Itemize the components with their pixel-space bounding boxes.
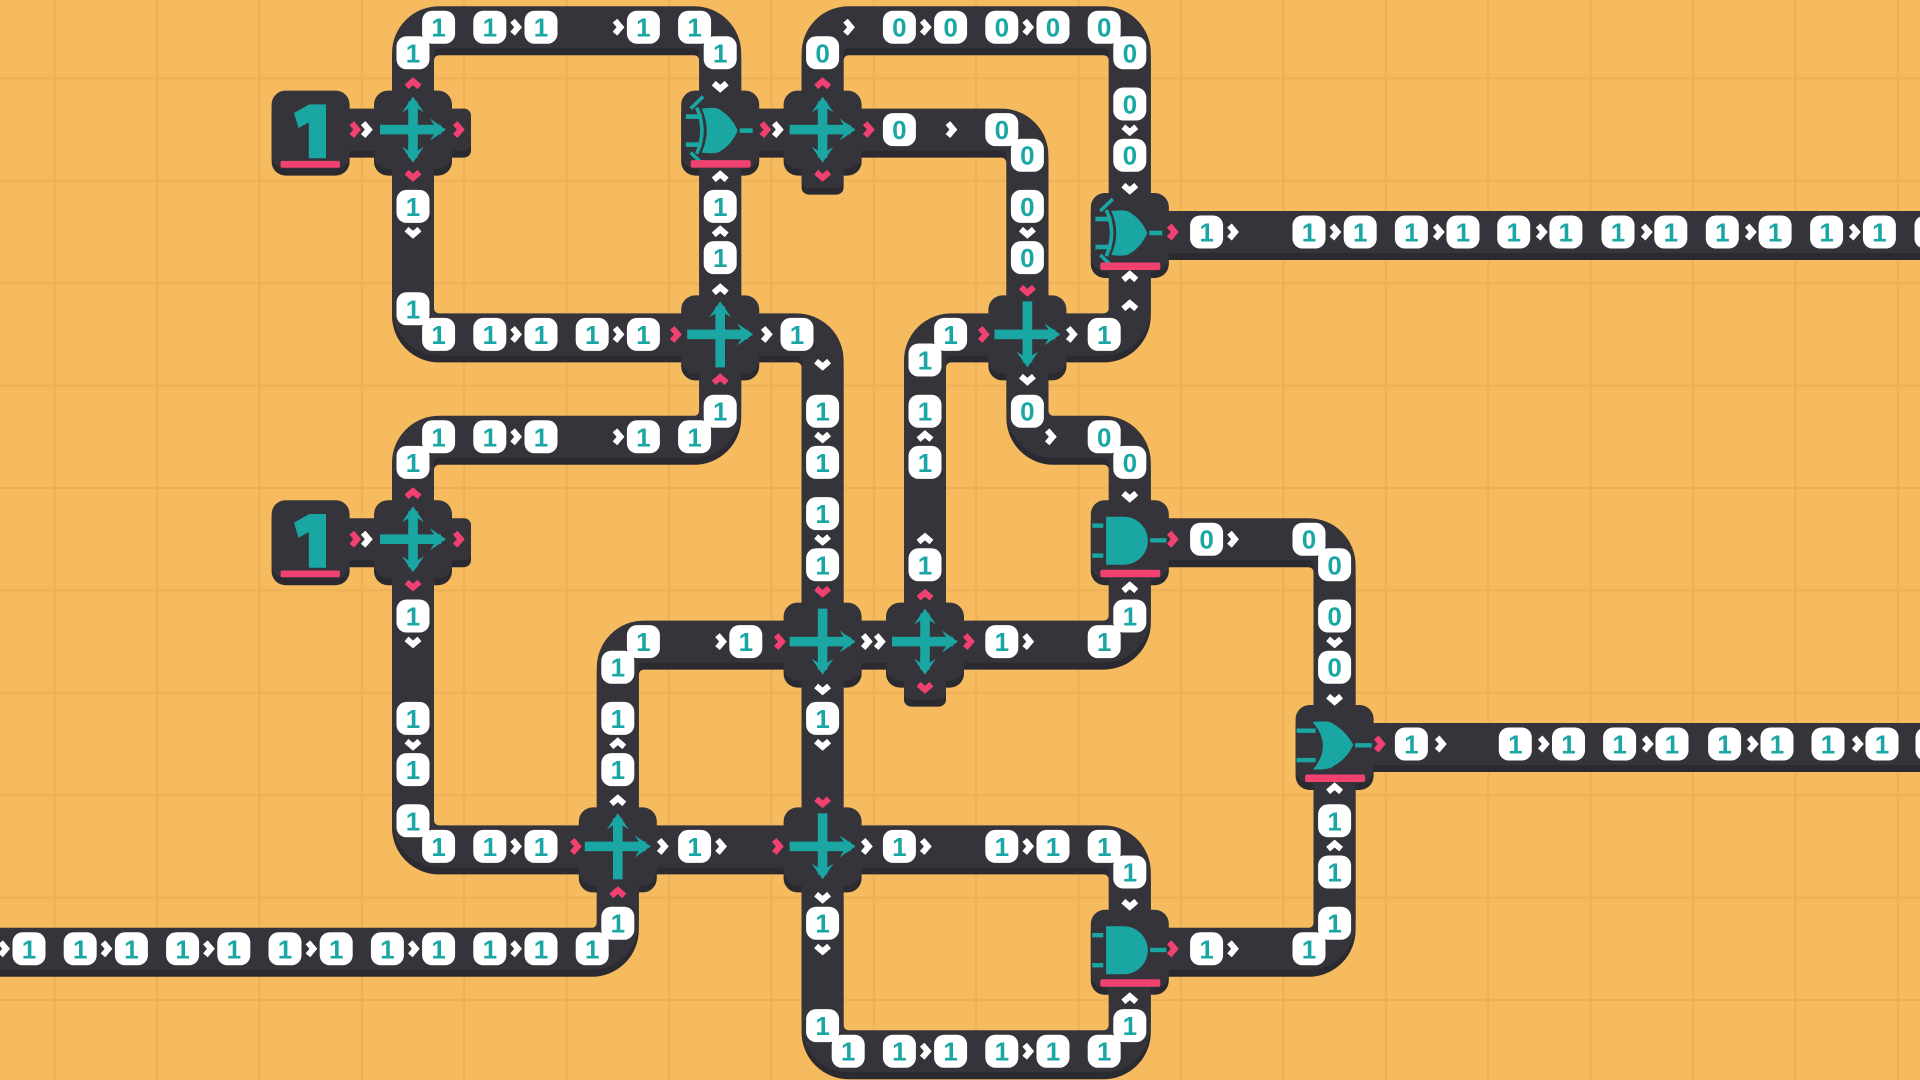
svg-text:1: 1 [611, 653, 625, 683]
svg-text:1: 1 [1046, 1037, 1060, 1067]
svg-text:1: 1 [1327, 858, 1341, 888]
svg-text:1: 1 [380, 934, 394, 964]
svg-text:1: 1 [918, 397, 932, 427]
svg-text:1: 1 [611, 909, 625, 939]
svg-text:1: 1 [1611, 218, 1625, 248]
svg-text:1: 1 [815, 499, 829, 529]
svg-text:1: 1 [175, 934, 189, 964]
svg-text:1: 1 [406, 192, 420, 222]
svg-text:1: 1 [815, 397, 829, 427]
svg-text:1: 1 [406, 755, 420, 785]
svg-text:1: 1 [1665, 730, 1679, 760]
svg-text:1: 1 [1506, 218, 1520, 248]
svg-text:1: 1 [918, 550, 932, 580]
svg-text:1: 1 [1875, 730, 1889, 760]
svg-text:1: 1 [1302, 934, 1316, 964]
svg-text:1: 1 [1456, 218, 1470, 248]
svg-text:1: 1 [1097, 627, 1111, 657]
svg-text:1: 1 [995, 1037, 1009, 1067]
svg-text:1: 1 [713, 243, 727, 273]
svg-text:0: 0 [1123, 90, 1137, 120]
svg-text:1: 1 [534, 13, 548, 43]
svg-text:1: 1 [815, 704, 829, 734]
svg-text:1: 1 [406, 294, 420, 324]
svg-text:0: 0 [892, 115, 906, 145]
svg-text:1: 1 [687, 422, 701, 452]
svg-text:0: 0 [943, 13, 957, 43]
svg-text:1: 1 [1123, 602, 1137, 632]
svg-text:1: 1 [329, 934, 343, 964]
svg-text:1: 1 [1664, 218, 1678, 248]
svg-text:1: 1 [892, 1037, 906, 1067]
svg-text:1: 1 [406, 704, 420, 734]
svg-text:1: 1 [406, 806, 420, 836]
svg-text:1: 1 [1097, 320, 1111, 350]
svg-text:1: 1 [483, 934, 497, 964]
svg-text:1: 1 [1821, 730, 1835, 760]
svg-text:1: 1 [713, 397, 727, 427]
svg-text:1: 1 [892, 832, 906, 862]
svg-text:1: 1 [124, 934, 138, 964]
svg-text:0: 0 [995, 13, 1009, 43]
svg-text:0: 0 [1020, 397, 1034, 427]
svg-text:1: 1 [1097, 832, 1111, 862]
svg-text:1: 1 [815, 448, 829, 478]
svg-text:0: 0 [995, 115, 1009, 145]
svg-text:1: 1 [739, 627, 753, 657]
svg-text:1: 1 [534, 934, 548, 964]
svg-text:1: 1 [406, 38, 420, 68]
svg-text:1: 1 [227, 934, 241, 964]
svg-text:1: 1 [1559, 218, 1573, 248]
svg-text:1: 1 [1353, 218, 1367, 248]
svg-text:1: 1 [406, 602, 420, 632]
svg-text:1: 1 [534, 422, 548, 452]
svg-text:1: 1 [918, 448, 932, 478]
svg-text:1: 1 [713, 192, 727, 222]
svg-text:1: 1 [431, 832, 445, 862]
svg-text:0: 0 [1327, 602, 1341, 632]
svg-text:1: 1 [1123, 1011, 1137, 1041]
svg-text:1: 1 [1872, 218, 1886, 248]
svg-text:0: 0 [1123, 141, 1137, 171]
svg-text:1: 1 [534, 320, 548, 350]
svg-text:1: 1 [1199, 934, 1213, 964]
svg-text:1: 1 [1612, 730, 1626, 760]
svg-text:1: 1 [611, 704, 625, 734]
svg-text:1: 1 [278, 934, 292, 964]
svg-text:1: 1 [73, 934, 87, 964]
svg-text:1: 1 [1819, 218, 1833, 248]
svg-text:1: 1 [1302, 218, 1316, 248]
svg-text:1: 1 [1097, 1037, 1111, 1067]
svg-text:0: 0 [1097, 13, 1111, 43]
svg-text:1: 1 [585, 934, 599, 964]
svg-text:1: 1 [790, 320, 804, 350]
svg-text:1: 1 [1199, 218, 1213, 248]
svg-text:0: 0 [1327, 550, 1341, 580]
svg-text:1: 1 [431, 934, 445, 964]
svg-text:1: 1 [815, 550, 829, 580]
svg-text:1: 1 [585, 320, 599, 350]
svg-text:1: 1 [1046, 832, 1060, 862]
svg-text:1: 1 [995, 627, 1009, 657]
svg-text:1: 1 [22, 934, 36, 964]
svg-text:1: 1 [841, 1037, 855, 1067]
svg-text:0: 0 [1020, 192, 1034, 222]
svg-text:0: 0 [1046, 13, 1060, 43]
svg-text:1: 1 [431, 422, 445, 452]
svg-text:1: 1 [1715, 218, 1729, 248]
svg-text:1: 1 [534, 832, 548, 862]
svg-text:1: 1 [1717, 730, 1731, 760]
svg-text:1: 1 [943, 320, 957, 350]
svg-text:0: 0 [1020, 141, 1034, 171]
svg-text:1: 1 [431, 13, 445, 43]
svg-text:1: 1 [483, 422, 497, 452]
svg-text:0: 0 [1097, 422, 1111, 452]
svg-text:1: 1 [636, 422, 650, 452]
svg-text:1: 1 [918, 346, 932, 376]
svg-text:1: 1 [1123, 858, 1137, 888]
svg-text:0: 0 [892, 13, 906, 43]
svg-text:0: 0 [1123, 448, 1137, 478]
svg-text:1: 1 [483, 320, 497, 350]
svg-text:1: 1 [636, 13, 650, 43]
svg-text:1: 1 [687, 13, 701, 43]
svg-text:1: 1 [483, 13, 497, 43]
svg-text:0: 0 [815, 38, 829, 68]
svg-text:1: 1 [1404, 730, 1418, 760]
svg-text:1: 1 [1770, 730, 1784, 760]
svg-text:0: 0 [1123, 38, 1137, 68]
svg-text:1: 1 [1561, 730, 1575, 760]
svg-text:1: 1 [815, 909, 829, 939]
svg-text:1: 1 [431, 320, 445, 350]
svg-text:1: 1 [406, 448, 420, 478]
svg-text:1: 1 [483, 832, 497, 862]
svg-text:1: 1 [1404, 218, 1418, 248]
svg-text:1: 1 [687, 832, 701, 862]
svg-text:1: 1 [636, 320, 650, 350]
svg-text:1: 1 [1327, 909, 1341, 939]
svg-text:1: 1 [1508, 730, 1522, 760]
svg-text:1: 1 [1768, 218, 1782, 248]
svg-text:1: 1 [815, 1011, 829, 1041]
svg-text:0: 0 [1327, 653, 1341, 683]
svg-text:0: 0 [1302, 525, 1316, 555]
svg-text:1: 1 [611, 755, 625, 785]
svg-text:1: 1 [995, 832, 1009, 862]
svg-text:1: 1 [636, 627, 650, 657]
svg-text:1: 1 [1327, 806, 1341, 836]
svg-text:1: 1 [943, 1037, 957, 1067]
svg-text:0: 0 [1020, 243, 1034, 273]
svg-text:0: 0 [1199, 525, 1213, 555]
svg-text:1: 1 [713, 38, 727, 68]
